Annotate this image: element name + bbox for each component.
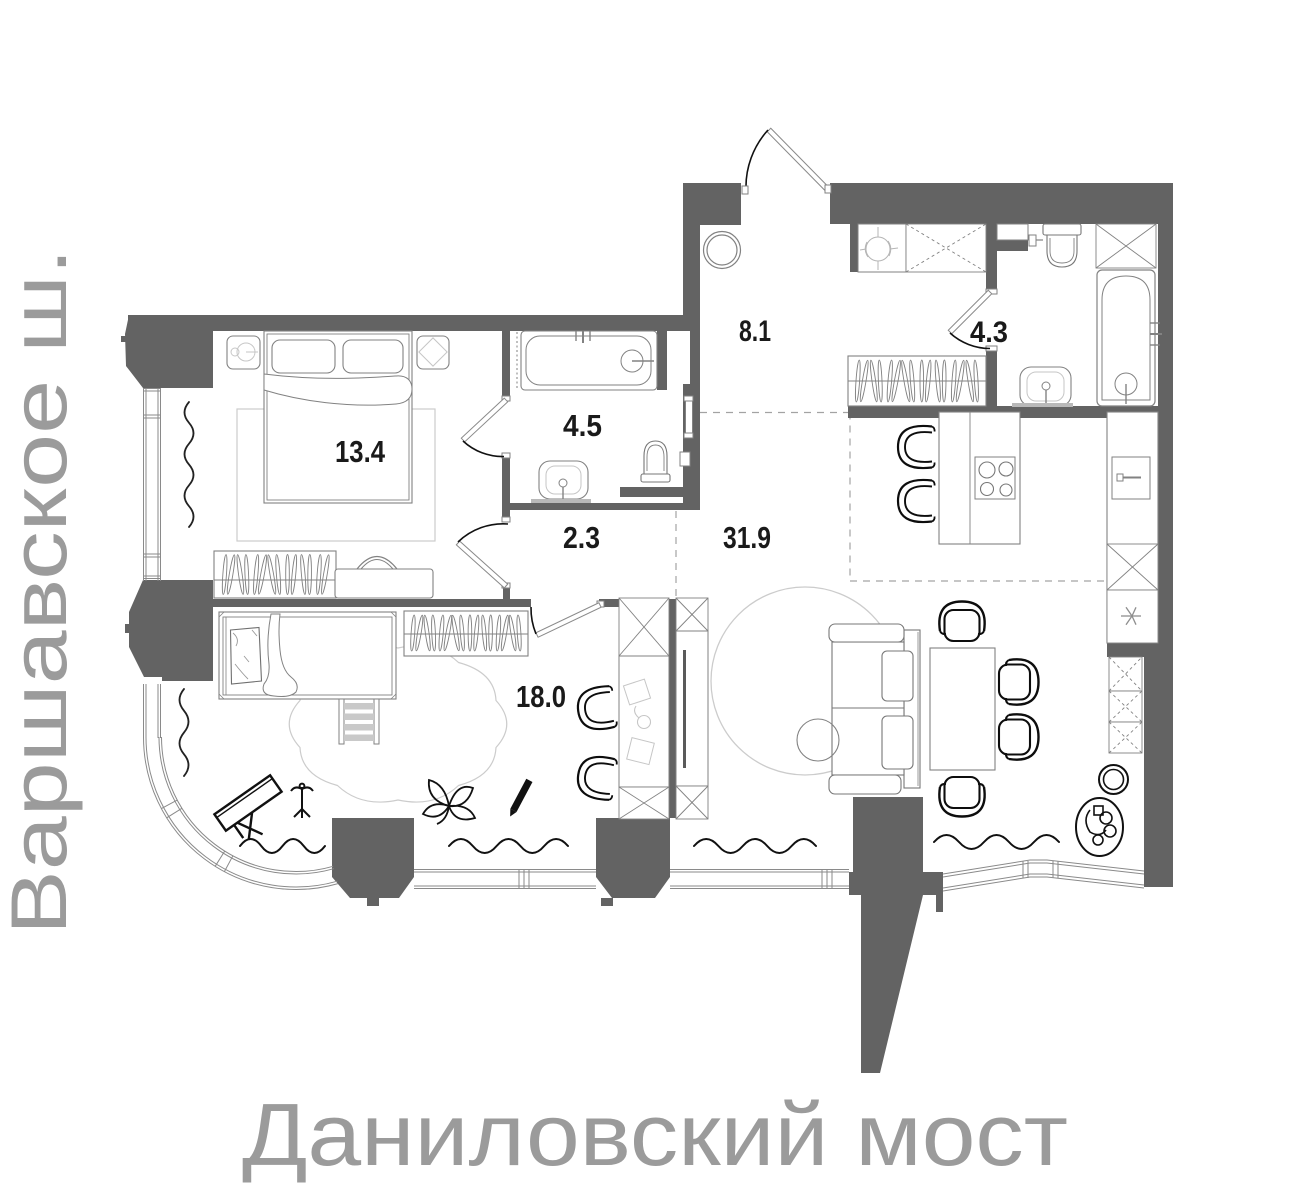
svg-text:2.3: 2.3	[563, 520, 600, 555]
svg-text:4.3: 4.3	[970, 316, 1008, 349]
svg-text:18.0: 18.0	[516, 679, 566, 714]
svg-text:Варшавское ш.: Варшавское ш.	[0, 248, 83, 935]
svg-text:13.4: 13.4	[335, 434, 386, 469]
svg-text:Даниловский мост: Даниловский мост	[242, 1085, 1068, 1184]
svg-text:4.5: 4.5	[563, 408, 602, 443]
svg-text:31.9: 31.9	[723, 520, 771, 555]
svg-text:8.1: 8.1	[739, 315, 771, 348]
